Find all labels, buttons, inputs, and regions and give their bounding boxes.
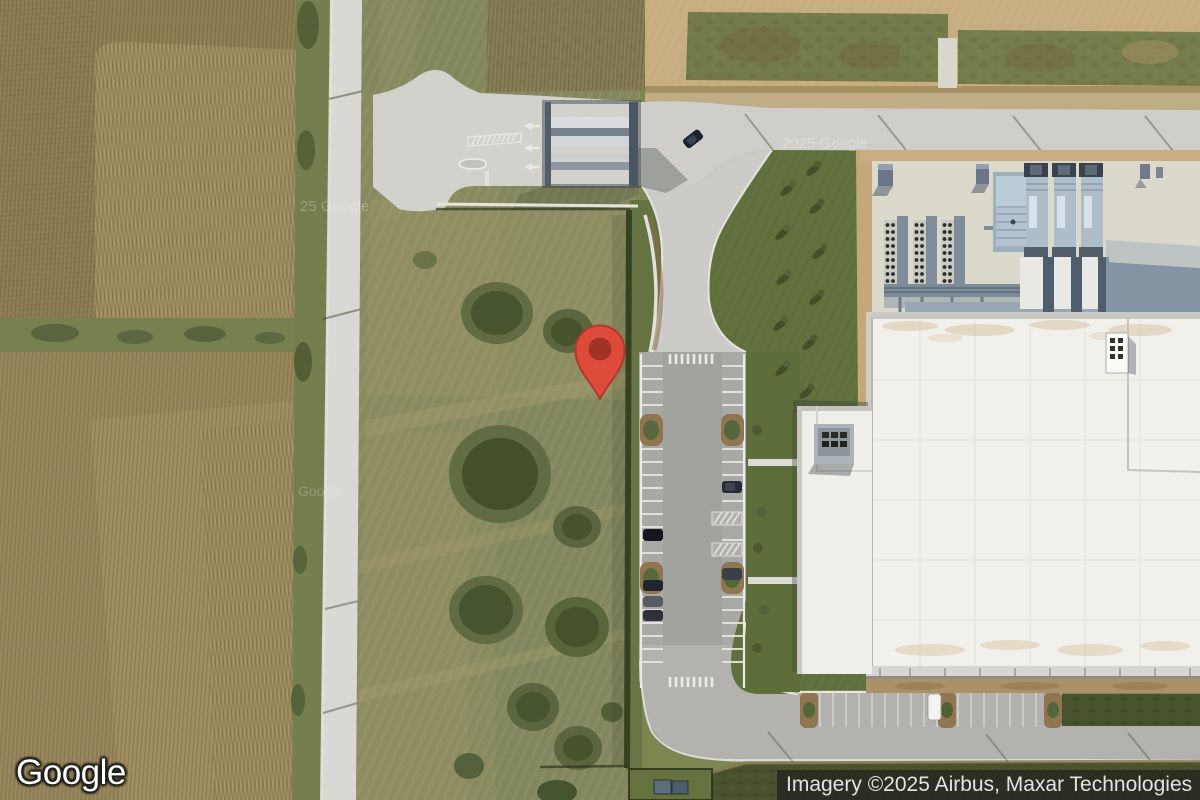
svg-text:2025 Google: 2025 Google [782, 135, 868, 152]
svg-text:Google: Google [298, 483, 343, 499]
svg-text:25 Google: 25 Google [300, 198, 369, 215]
